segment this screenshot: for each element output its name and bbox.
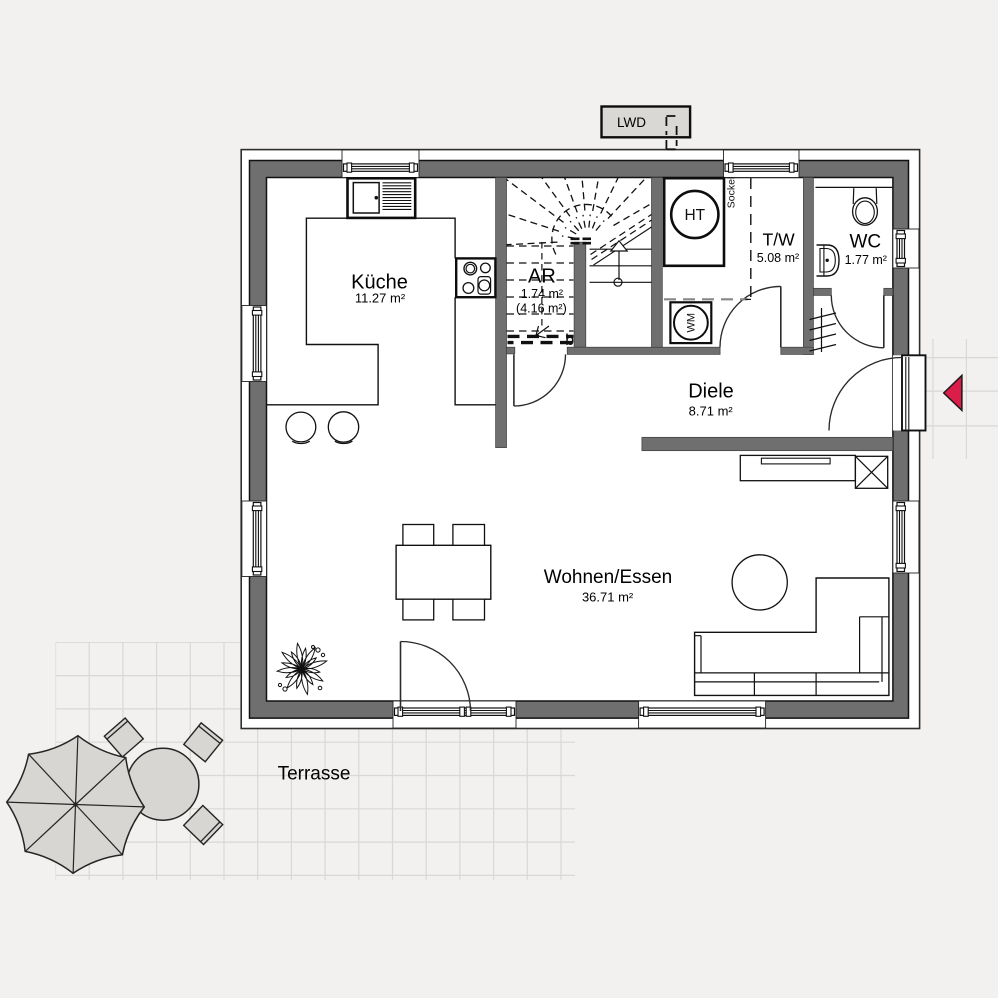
svg-text:AR: AR xyxy=(528,265,556,287)
svg-text:Wohnen/Essen: Wohnen/Essen xyxy=(544,567,673,588)
svg-text:b: b xyxy=(565,332,574,349)
svg-text:Sockel: Sockel xyxy=(726,177,738,209)
svg-text:Terrasse: Terrasse xyxy=(278,764,351,785)
svg-text:1.77 m²: 1.77 m² xyxy=(845,253,887,267)
svg-text:11.27 m²: 11.27 m² xyxy=(355,290,406,305)
svg-text:5.08 m²: 5.08 m² xyxy=(757,251,799,265)
svg-text:HT: HT xyxy=(684,207,705,224)
svg-text:WC: WC xyxy=(849,232,881,253)
svg-text:T/W: T/W xyxy=(763,229,796,249)
svg-text:8.71 m²: 8.71 m² xyxy=(689,404,734,419)
svg-text:1.74 m²: 1.74 m² xyxy=(521,287,563,301)
svg-text:WM: WM xyxy=(686,313,698,333)
svg-text:Diele: Diele xyxy=(688,381,734,403)
svg-text:36.71 m²: 36.71 m² xyxy=(582,590,634,605)
svg-text:(4.16 m²): (4.16 m²) xyxy=(516,301,567,315)
svg-text:LWD: LWD xyxy=(617,115,646,130)
